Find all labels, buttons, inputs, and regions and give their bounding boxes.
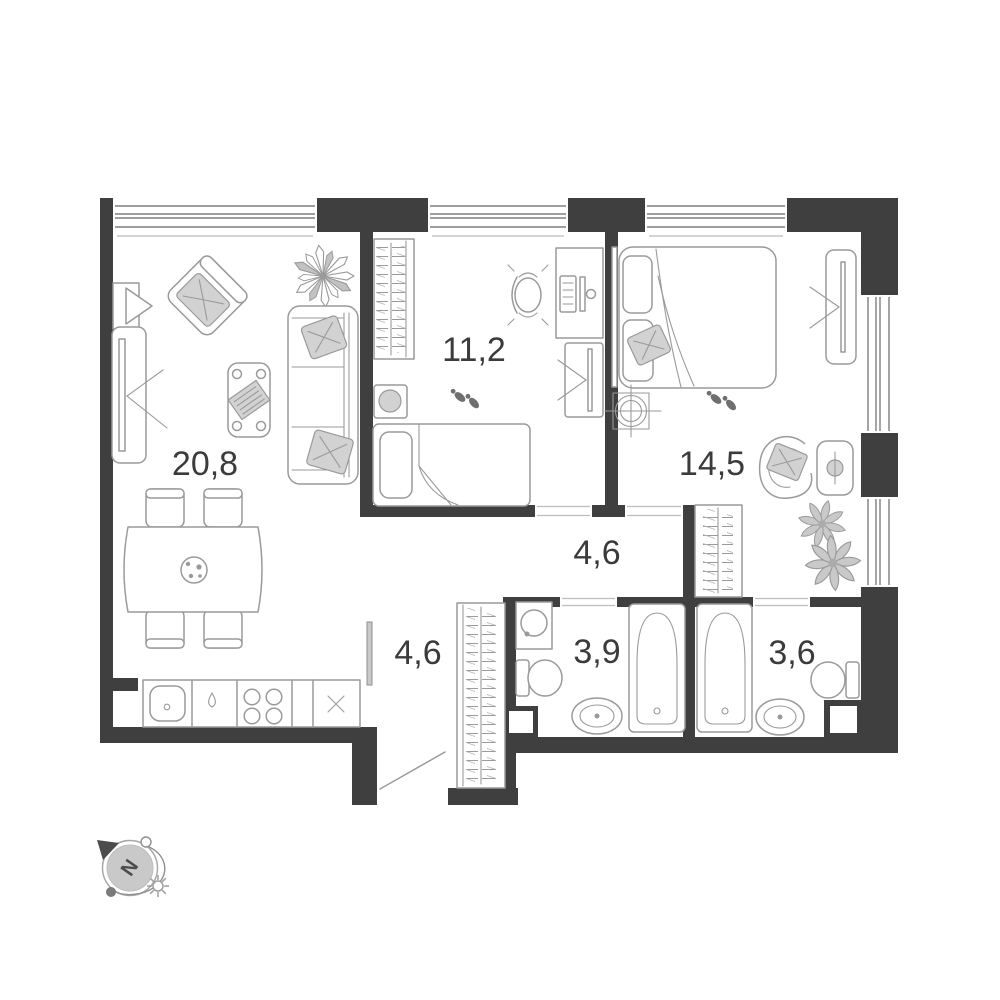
- window-master-bedroom-top: [645, 198, 787, 236]
- door-master-bedroom: [627, 507, 681, 516]
- tv-console: [810, 250, 856, 364]
- coffee-table: [228, 363, 270, 437]
- area-label-living: 20,8: [172, 445, 238, 483]
- window-living: [113, 198, 317, 236]
- door-ensuite-bathroom: [755, 599, 808, 606]
- washbasin-cabinet: [516, 602, 552, 649]
- wall-living-bedroom-partition: [360, 232, 373, 513]
- sofa: [288, 306, 358, 484]
- wall-entry-jamb: [352, 727, 377, 805]
- side-table-lamp: [817, 441, 853, 495]
- hallway-upper: 4,6: [573, 534, 620, 572]
- wall-right-segment: [861, 433, 898, 497]
- wardrobe: [457, 603, 505, 788]
- room-bathroom: 3,9: [516, 602, 685, 734]
- kitchen-counter: [143, 680, 360, 727]
- pedestal-sink: [756, 699, 804, 735]
- door-bathroom: [562, 599, 615, 606]
- wall-master-corner: [683, 505, 695, 607]
- bedside-stool: [374, 385, 407, 418]
- area-label-bathroom: 3,9: [573, 633, 620, 671]
- wardrobe: [374, 239, 414, 359]
- toilet: [811, 662, 859, 698]
- bathtub: [697, 604, 752, 732]
- compass-dot-open: [141, 837, 151, 847]
- wall-bottom: [503, 737, 898, 753]
- office-chair: [508, 265, 548, 325]
- door-bedroom: [537, 507, 590, 516]
- room-bedroom: 11,2: [373, 239, 603, 506]
- dining-table: [124, 489, 262, 648]
- wall-kitchen-stub: [100, 678, 138, 691]
- wall-top-right-corner: [787, 198, 898, 232]
- compass-dot-filled: [106, 887, 116, 897]
- bathtub: [629, 604, 685, 732]
- kitchen-sink: [150, 686, 185, 721]
- floor-plan: 20,8: [0, 0, 1000, 1000]
- armchair: [165, 254, 250, 339]
- room-master-bedroom: 14,5: [605, 247, 872, 602]
- area-label-corridor: 4,6: [394, 634, 441, 672]
- double-bed: [612, 247, 776, 388]
- pillow: [623, 256, 652, 313]
- single-bed: [373, 424, 530, 506]
- area-label-bedroom: 11,2: [442, 331, 506, 369]
- lounge-armchair: [760, 437, 812, 499]
- keyboard: [560, 276, 576, 312]
- plant: [293, 245, 354, 307]
- wall-bath-top: [810, 597, 861, 607]
- entrance-door-swing: [380, 752, 445, 789]
- duct-shaft-inner: [509, 711, 533, 733]
- area-label-hallway: 4,6: [573, 534, 620, 572]
- plant-flowers: [793, 495, 872, 602]
- sun-icon: [147, 875, 169, 897]
- pedestal-sink: [572, 698, 622, 734]
- open-door-leaf: [367, 622, 372, 685]
- wardrobe: [695, 505, 742, 597]
- wall-right-segment: [861, 232, 898, 295]
- ceiling-light-symbol: [605, 385, 661, 437]
- plate: [181, 557, 207, 583]
- desk: [556, 248, 603, 338]
- pillow: [380, 432, 412, 498]
- wall-kitchen-bottom: [100, 727, 368, 743]
- room-living: 20,8: [112, 245, 360, 727]
- window-master-bedroom-right-2: [861, 497, 898, 587]
- duct-shaft-inner: [830, 706, 857, 733]
- compass-icon: N: [97, 837, 169, 897]
- window-master-bedroom-right: [861, 295, 898, 433]
- footprints: [449, 387, 481, 410]
- footprints: [705, 389, 738, 412]
- wall-left: [100, 198, 113, 743]
- headboard: [612, 247, 617, 387]
- window-bedroom: [428, 198, 568, 236]
- corridor-lower: 4,6: [394, 603, 505, 788]
- wall-top-segment: [568, 198, 645, 232]
- floor-lamp: [113, 283, 152, 329]
- wall-bedroom-bottom: [360, 505, 535, 517]
- tv-dresser: [558, 343, 603, 417]
- area-label-ensuite-bathroom: 3,6: [768, 634, 815, 672]
- area-label-master-bedroom: 14,5: [679, 445, 745, 483]
- floor-plan-canvas: 20,8: [0, 0, 1000, 1000]
- tv-stand: [112, 327, 167, 463]
- wall-top-segment: [317, 198, 428, 232]
- wall-right-segment: [861, 587, 898, 753]
- toilet: [516, 660, 562, 696]
- monitor: [580, 277, 585, 311]
